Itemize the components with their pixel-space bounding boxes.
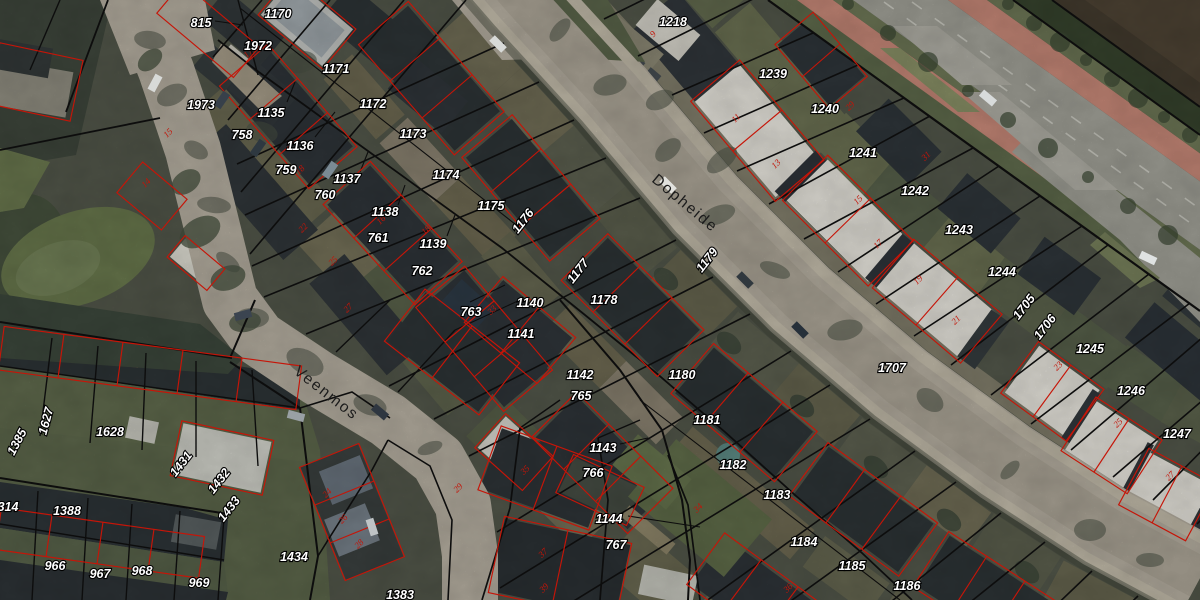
svg-text:1175: 1175: [478, 199, 506, 213]
svg-text:966: 966: [45, 559, 67, 573]
svg-text:763: 763: [461, 305, 482, 319]
svg-text:1137: 1137: [334, 172, 362, 186]
svg-text:1244: 1244: [988, 265, 1016, 279]
svg-text:1141: 1141: [508, 327, 535, 341]
svg-text:1142: 1142: [567, 368, 594, 382]
svg-text:1144: 1144: [596, 512, 623, 526]
svg-text:1181: 1181: [694, 413, 721, 427]
svg-text:1434: 1434: [280, 550, 308, 564]
svg-text:1240: 1240: [811, 102, 839, 116]
svg-text:1172: 1172: [360, 97, 387, 111]
svg-text:1173: 1173: [400, 127, 427, 141]
svg-text:767: 767: [606, 538, 628, 552]
svg-text:815: 815: [191, 16, 213, 30]
svg-text:314: 314: [0, 500, 18, 514]
svg-text:1139: 1139: [420, 237, 447, 251]
svg-text:1241: 1241: [849, 146, 877, 160]
svg-text:1246: 1246: [1117, 384, 1146, 398]
svg-text:1185: 1185: [839, 559, 867, 573]
svg-text:1388: 1388: [53, 504, 81, 518]
svg-text:1383: 1383: [386, 588, 414, 600]
svg-text:1135: 1135: [258, 106, 286, 120]
svg-text:1972: 1972: [244, 39, 272, 53]
svg-text:969: 969: [189, 576, 210, 590]
svg-text:1138: 1138: [372, 205, 399, 219]
svg-text:1239: 1239: [759, 67, 787, 81]
svg-text:766: 766: [583, 466, 605, 480]
svg-text:765: 765: [571, 389, 593, 403]
svg-text:760: 760: [315, 188, 336, 202]
svg-text:1170: 1170: [265, 7, 292, 21]
svg-text:1171: 1171: [323, 62, 350, 76]
svg-text:1973: 1973: [187, 98, 215, 112]
svg-text:762: 762: [412, 264, 433, 278]
svg-text:967: 967: [90, 567, 112, 581]
svg-text:1178: 1178: [591, 293, 618, 307]
svg-text:1186: 1186: [894, 579, 922, 593]
svg-text:1218: 1218: [659, 15, 687, 29]
svg-text:1245: 1245: [1076, 342, 1105, 356]
svg-text:968: 968: [132, 564, 153, 578]
svg-text:1180: 1180: [669, 368, 696, 382]
svg-text:1136: 1136: [287, 139, 315, 153]
svg-text:1247: 1247: [1163, 427, 1192, 441]
svg-text:1242: 1242: [901, 184, 929, 198]
svg-text:1140: 1140: [517, 296, 544, 310]
svg-text:1143: 1143: [590, 441, 617, 455]
svg-text:761: 761: [368, 231, 389, 245]
svg-text:1707: 1707: [878, 361, 907, 375]
svg-text:1184: 1184: [791, 535, 818, 549]
svg-text:758: 758: [232, 128, 253, 142]
svg-text:1628: 1628: [96, 425, 124, 439]
svg-text:1182: 1182: [720, 458, 747, 472]
svg-text:1183: 1183: [764, 488, 791, 502]
svg-text:759: 759: [276, 163, 297, 177]
svg-text:1243: 1243: [945, 223, 973, 237]
svg-text:1174: 1174: [433, 168, 460, 182]
